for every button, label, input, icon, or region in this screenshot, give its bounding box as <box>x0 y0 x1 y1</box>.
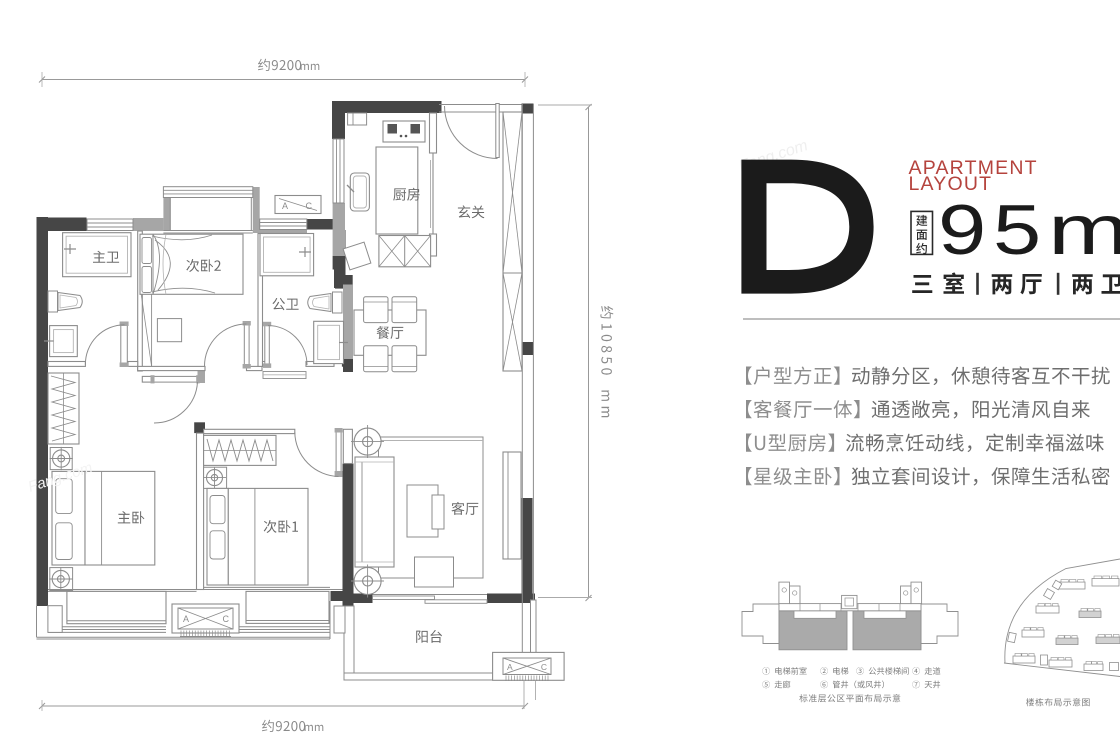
svg-text:m: m <box>1048 191 1120 270</box>
svg-text:C: C <box>223 614 230 624</box>
svg-text:C: C <box>541 662 547 672</box>
svg-text:95: 95 <box>938 190 1048 269</box>
svg-text:A: A <box>507 662 513 672</box>
svg-text:A: A <box>183 614 189 624</box>
svg-text:A: A <box>282 201 288 211</box>
svg-text:C: C <box>306 201 313 211</box>
